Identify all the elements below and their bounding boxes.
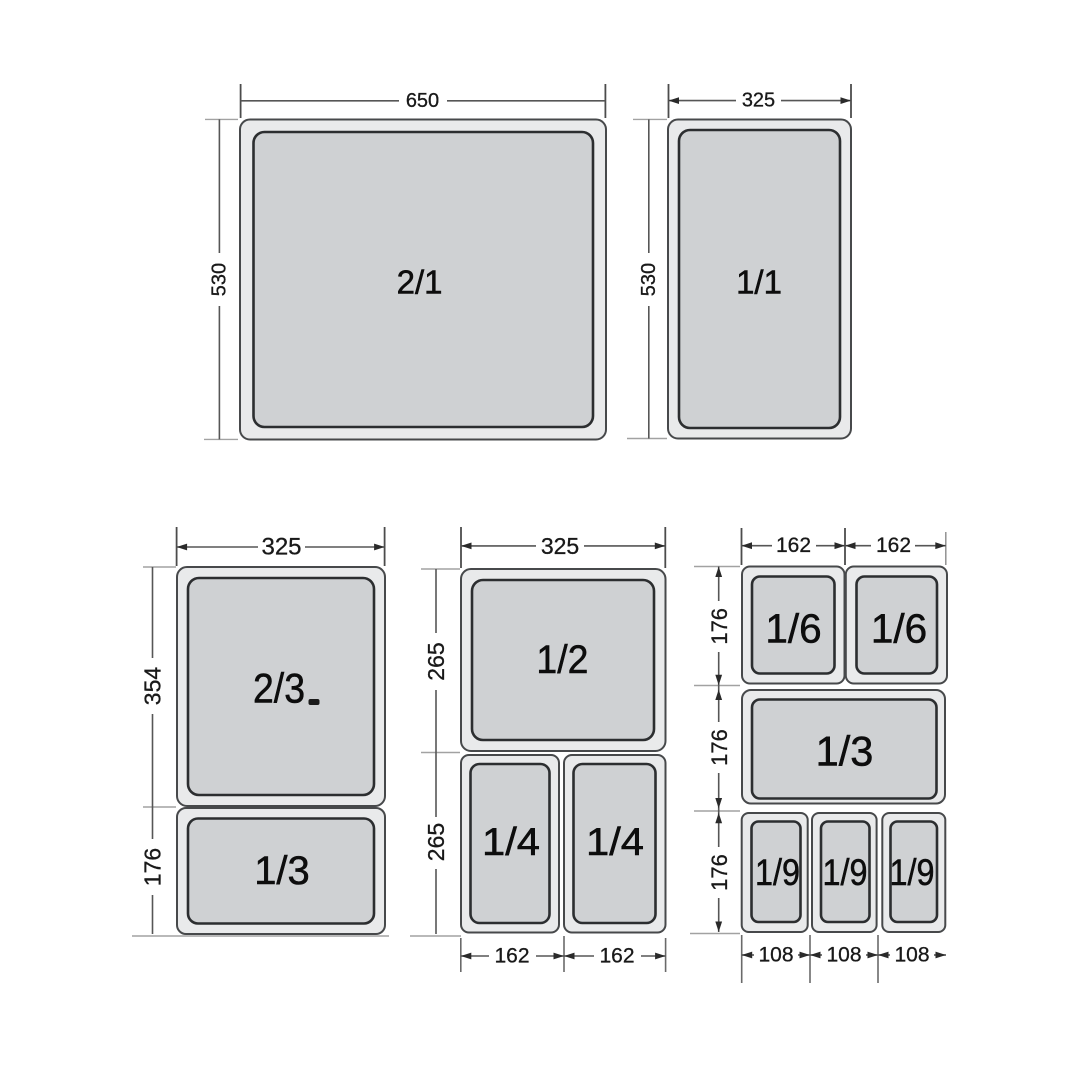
- svg-text:1/1: 1/1: [736, 264, 782, 301]
- svg-text:650: 650: [406, 90, 439, 112]
- svg-text:1/9: 1/9: [755, 852, 800, 893]
- svg-text:1/6: 1/6: [871, 606, 927, 652]
- svg-text:176: 176: [707, 608, 732, 645]
- svg-text:1/4: 1/4: [482, 821, 540, 864]
- svg-text:325: 325: [261, 534, 301, 561]
- svg-text:265: 265: [423, 823, 449, 861]
- svg-text:1/4: 1/4: [586, 821, 644, 864]
- svg-text:265: 265: [423, 642, 449, 680]
- svg-text:108: 108: [826, 944, 861, 967]
- svg-text:108: 108: [894, 944, 929, 967]
- svg-text:325: 325: [541, 533, 579, 559]
- svg-text:162: 162: [494, 945, 529, 968]
- svg-text:1/6: 1/6: [765, 606, 821, 652]
- svg-text:530: 530: [638, 263, 660, 296]
- svg-text:162: 162: [776, 534, 811, 557]
- svg-text:2/3: 2/3: [253, 665, 305, 712]
- svg-text:354: 354: [140, 667, 166, 706]
- svg-text:162: 162: [599, 945, 634, 968]
- svg-text:1/3: 1/3: [816, 728, 874, 775]
- svg-text:108: 108: [758, 944, 793, 967]
- svg-text:176: 176: [140, 848, 166, 886]
- svg-text:1/9: 1/9: [823, 852, 868, 893]
- svg-text:325: 325: [742, 90, 775, 112]
- svg-text:2/1: 2/1: [397, 264, 443, 301]
- svg-text:162: 162: [876, 534, 911, 557]
- svg-text:176: 176: [707, 854, 732, 891]
- svg-text:530: 530: [208, 263, 230, 296]
- svg-text:1/9: 1/9: [890, 852, 935, 893]
- svg-text:1/2: 1/2: [536, 638, 588, 682]
- svg-text:1/3: 1/3: [254, 849, 310, 893]
- svg-text:176: 176: [707, 729, 732, 766]
